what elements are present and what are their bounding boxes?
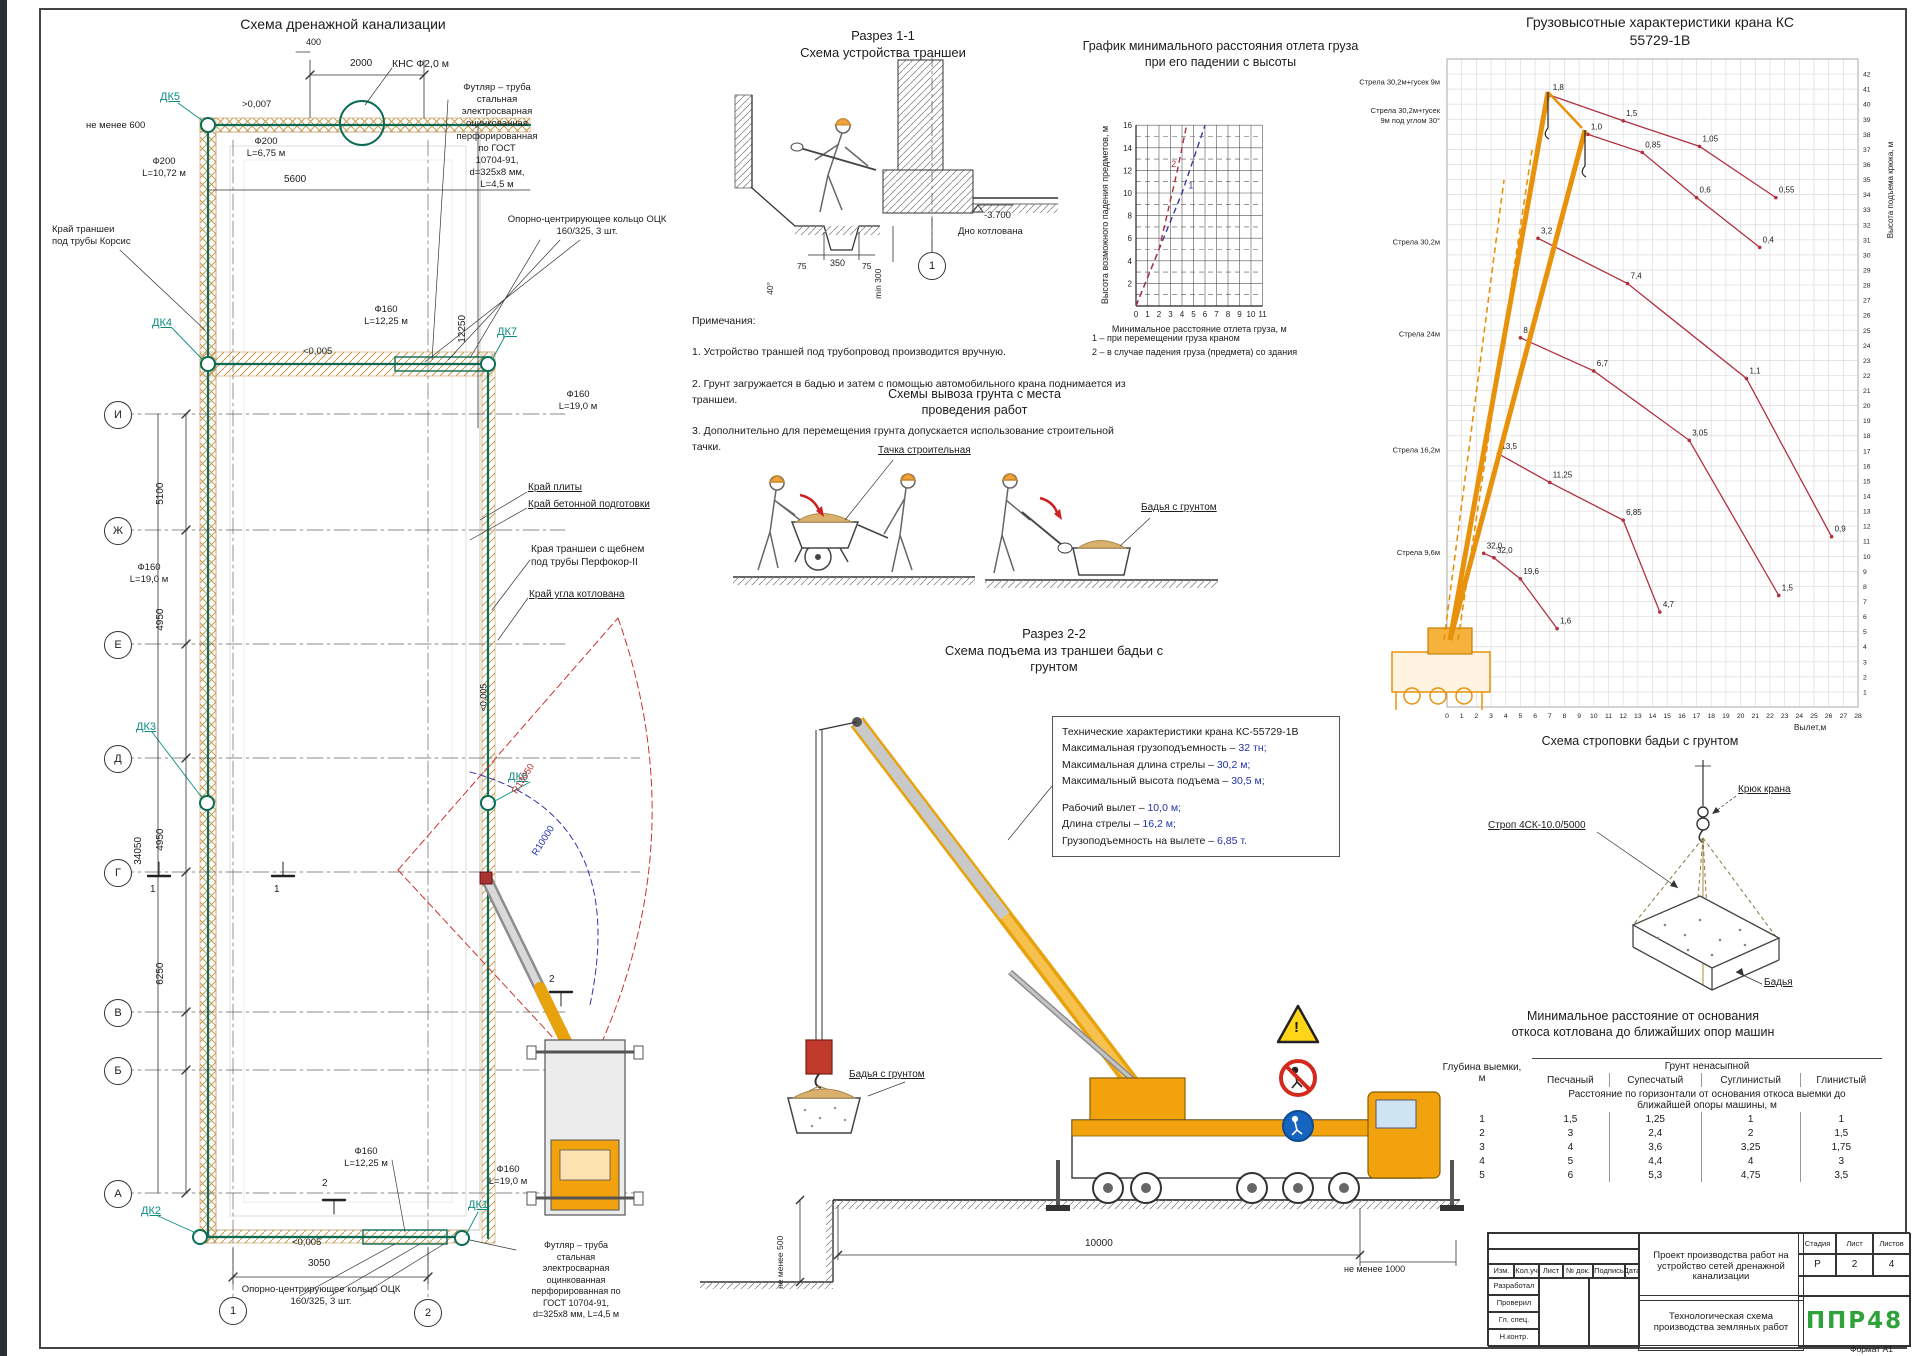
sling-title: Схема строповки бадьи с грунтом — [1510, 733, 1770, 749]
table-row: 11,51,2511 — [1432, 1112, 1882, 1126]
svg-text:21: 21 — [1751, 713, 1759, 720]
korsis-callout: Край траншеи под трубы Корсис — [52, 224, 131, 248]
svg-text:26: 26 — [1825, 713, 1833, 720]
specs-title: Технические характеристики крана КС-5572… — [1062, 724, 1330, 740]
svg-text:Стрела 30,2м: Стрела 30,2м — [1393, 237, 1440, 246]
svg-text:18: 18 — [1707, 713, 1715, 720]
cart-label: Тачка строительная — [878, 445, 971, 458]
svg-text:11: 11 — [1605, 713, 1612, 720]
svg-text:7: 7 — [1214, 310, 1219, 319]
svg-text:30: 30 — [1863, 252, 1871, 259]
svg-text:1,5: 1,5 — [1782, 583, 1794, 592]
section-2-2-title: Разрез 2-2 Схема подъема из траншеи бадь… — [920, 626, 1188, 676]
f160-1225-label-top: Ф160 L=12,25 м — [344, 304, 428, 328]
tb-stage-value: Р — [1798, 1253, 1837, 1277]
svg-text:2: 2 — [1128, 279, 1133, 288]
svg-text:2: 2 — [1863, 674, 1867, 681]
svg-text:8: 8 — [1863, 584, 1867, 591]
svg-text:3: 3 — [1489, 713, 1493, 720]
svg-text:4: 4 — [1180, 310, 1185, 319]
s22-dim-10000: 10000 — [1085, 1238, 1113, 1251]
svg-text:37: 37 — [1863, 147, 1871, 154]
fall-chart-title: График минимального расстояния отлета гр… — [1073, 38, 1368, 70]
svg-text:Стрела 30,2м+гусек: Стрела 30,2м+гусек — [1371, 106, 1441, 115]
s11-angle: 40° — [765, 282, 776, 295]
svg-text:36: 36 — [1863, 162, 1871, 169]
axis-bubble-v: В — [104, 999, 132, 1027]
strop-label: Строп 4СК-10.0/5000 — [1488, 820, 1586, 833]
axis-bubble-i: И — [104, 401, 132, 429]
depth-header: Глубина выемки, м — [1432, 1059, 1532, 1088]
svg-text:8: 8 — [1226, 310, 1231, 319]
svg-text:8: 8 — [1128, 212, 1133, 221]
svg-text:40: 40 — [1863, 102, 1871, 109]
svg-text:1: 1 — [1460, 713, 1464, 720]
svg-text:14: 14 — [1863, 494, 1871, 501]
svg-text:Высота возможного падения пред: Высота возможного падения предметов, м — [1100, 126, 1110, 304]
svg-text:41: 41 — [1863, 87, 1871, 94]
drawing-sheet: 0123456789101112131415161718192021222324… — [0, 0, 1920, 1356]
svg-text:20: 20 — [1737, 713, 1745, 720]
svg-text:16: 16 — [1123, 121, 1132, 130]
svg-text:1: 1 — [1863, 689, 1867, 696]
crane-chart-title: Грузовысотные характеристики крана КС 55… — [1505, 14, 1815, 50]
warning-sign-glyph: ! — [1294, 1018, 1299, 1037]
svg-text:12: 12 — [1863, 524, 1871, 531]
svg-text:0: 0 — [1445, 713, 1449, 720]
svg-text:2: 2 — [1171, 159, 1176, 169]
svg-text:28: 28 — [1854, 713, 1862, 720]
svg-text:10: 10 — [1247, 310, 1256, 319]
tb-sheet-header: Лист — [1835, 1233, 1874, 1255]
svg-text:16: 16 — [1863, 463, 1871, 470]
edge-pit-callout: Край угла котлована — [529, 589, 624, 602]
svg-text:1: 1 — [1145, 310, 1150, 319]
f160-19-label-left: Ф160 L=19,0 м — [112, 562, 186, 586]
svg-text:8: 8 — [1563, 713, 1567, 720]
dim-5600: 5600 — [284, 174, 306, 187]
svg-text:14: 14 — [1123, 144, 1132, 153]
notes-heading: Примечания: — [692, 314, 1142, 330]
svg-text:31: 31 — [1863, 237, 1871, 244]
svg-text:26: 26 — [1863, 313, 1871, 320]
svg-text:6: 6 — [1128, 234, 1133, 243]
tb-row-ncontr: Н.контр. — [1488, 1328, 1540, 1347]
svg-text:23: 23 — [1781, 713, 1789, 720]
f160-1225-label-bottom: Ф160 L=12,25 м — [322, 1146, 410, 1170]
svg-text:14: 14 — [1649, 713, 1657, 720]
f200-1-label: Ф200 L=10,72 м — [128, 156, 200, 180]
svg-text:22: 22 — [1766, 713, 1774, 720]
svg-text:11,25: 11,25 — [1553, 470, 1573, 479]
section-1-flag-b: 1 — [274, 884, 280, 897]
dim-2000: 2000 — [350, 58, 372, 71]
spec-radius-capacity: Грузоподъемность на вылете – 6,85 т. — [1062, 833, 1330, 849]
svg-text:27: 27 — [1863, 298, 1871, 305]
svg-text:7,4: 7,4 — [1631, 272, 1643, 281]
s22-dim-1000: не менее 1000 — [1344, 1264, 1405, 1276]
svg-text:9: 9 — [1237, 310, 1242, 319]
svg-text:3,2: 3,2 — [1541, 226, 1553, 235]
svg-text:5: 5 — [1519, 713, 1523, 720]
badya-label: Бадья — [1764, 977, 1793, 990]
svg-text:1,6: 1,6 — [1560, 617, 1572, 626]
tb-project-name: Проект производства работ на устройство … — [1638, 1233, 1804, 1301]
svg-text:10: 10 — [1863, 554, 1871, 561]
tb-logo: ППР48 — [1798, 1295, 1911, 1347]
svg-text:35: 35 — [1863, 177, 1871, 184]
title-block: Изм. Кол.уч Лист № док. Подпись Дата Раз… — [1487, 1232, 1910, 1346]
kns-label: КНС Ф2,0 м — [392, 58, 449, 71]
s11-elevation: -3.700 — [984, 210, 1011, 222]
svg-text:18: 18 — [1863, 433, 1871, 440]
casing-bottom-callout: Футляр – труба стальная электросварная о… — [514, 1240, 638, 1321]
col-bubble-1: 1 — [219, 1297, 247, 1325]
svg-text:21: 21 — [1863, 388, 1871, 395]
svg-text:6: 6 — [1203, 310, 1208, 319]
svg-text:0,4: 0,4 — [1763, 235, 1775, 244]
slope-005-top: <0,005 — [303, 346, 332, 358]
slope-005-vert: <0,005 — [478, 684, 490, 712]
tb-stage-header: Стадия — [1798, 1233, 1837, 1255]
fall-chart-legend-1: 1 – при перемещении груза краном — [1092, 333, 1412, 345]
s11-dim-75-left: 75 — [797, 261, 806, 272]
ne-menee-600-label: не менее 600 — [86, 120, 145, 132]
tb-sheets-header: Листов — [1872, 1233, 1911, 1255]
svg-text:10: 10 — [1123, 189, 1132, 198]
svg-text:20: 20 — [1863, 403, 1871, 410]
svg-text:6,7: 6,7 — [1597, 359, 1609, 368]
svg-text:16: 16 — [1678, 713, 1686, 720]
svg-text:2: 2 — [1157, 310, 1162, 319]
svg-text:6,85: 6,85 — [1626, 508, 1642, 517]
dk2-marker: ДК2 — [141, 1204, 161, 1218]
table-row: 454,443 — [1432, 1154, 1882, 1168]
table-note: Расстояние по горизонтали от основания о… — [1532, 1087, 1882, 1112]
slope-005-bottom: <0,005 — [292, 1237, 321, 1249]
spec-lift-height: Максимальный высота подъема – 30,5 м; — [1062, 773, 1330, 789]
slope-top-label: >0,007 — [242, 99, 271, 111]
axis-bubble-a: А — [104, 1180, 132, 1208]
svg-text:0,55: 0,55 — [1779, 186, 1795, 195]
svg-text:2: 2 — [1474, 713, 1478, 720]
svg-text:27: 27 — [1840, 713, 1848, 720]
svg-text:25: 25 — [1863, 328, 1871, 335]
dk3-marker: ДК3 — [136, 720, 156, 734]
axis-bubble-b: Б — [104, 1057, 132, 1085]
svg-text:7: 7 — [1548, 713, 1552, 720]
svg-text:13: 13 — [1634, 713, 1642, 720]
svg-text:3,05: 3,05 — [1692, 428, 1708, 437]
dim-4950-b: 4950 — [155, 829, 168, 851]
soil-bucket-label: Бадья с грунтом — [1141, 502, 1217, 515]
fall-chart-legend-2: 2 – в случае падения груза (предмета) со… — [1092, 347, 1412, 359]
table-row: 343,63,251,75 — [1432, 1140, 1882, 1154]
section-2-flag-b: 2 — [549, 974, 555, 987]
svg-text:4: 4 — [1128, 257, 1133, 266]
svg-text:4: 4 — [1504, 713, 1508, 720]
distance-table-title: Минимальное расстояние от основания отко… — [1468, 1008, 1818, 1040]
svg-text:3: 3 — [1863, 659, 1867, 666]
dim-4950-a: 4950 — [155, 609, 168, 631]
casing-top-callout: Футляр – труба стальная электросварная о… — [443, 82, 551, 191]
svg-text:4: 4 — [1863, 644, 1867, 651]
dk5-marker: ДК5 — [160, 90, 180, 104]
spec-boom-length-max: Максимальная длина стрелы – 30,2 м; — [1062, 757, 1330, 773]
svg-text:Вылет,м: Вылет,м — [1794, 722, 1826, 732]
svg-text:Стрела 16,2м: Стрела 16,2м — [1393, 445, 1440, 454]
s11-dim-75-right: 75 — [862, 261, 871, 272]
svg-text:24: 24 — [1863, 343, 1871, 350]
svg-text:25: 25 — [1810, 713, 1818, 720]
edge-trench-callout: Края траншеи с щебнем под трубы Перфокор… — [531, 544, 644, 570]
axis-bubble-d: Д — [104, 745, 132, 773]
svg-text:39: 39 — [1863, 117, 1871, 124]
s11-min-300: min 300 — [873, 269, 884, 299]
s11-dim-350: 350 — [830, 258, 845, 270]
svg-text:23: 23 — [1863, 358, 1871, 365]
s11-detail-bubble: 1 — [918, 252, 946, 280]
svg-text:3: 3 — [1168, 310, 1173, 319]
edge-plate-callout: Край плиты — [528, 482, 582, 495]
axis-bubble-e: Е — [104, 631, 132, 659]
plan-title: Схема дренажной канализации — [203, 16, 483, 34]
svg-text:1: 1 — [1188, 180, 1193, 190]
edge-concrete-callout: Край бетонной подготовки — [528, 499, 650, 512]
table-row: 565,34,753,5 — [1432, 1168, 1882, 1182]
svg-text:0,6: 0,6 — [1700, 186, 1712, 195]
svg-text:6: 6 — [1533, 713, 1537, 720]
s22-bucket-label: Бадья с грунтом — [849, 1069, 925, 1082]
dim-34050: 34050 — [133, 837, 146, 865]
hook-label: Крюк крана — [1738, 784, 1791, 797]
note-item-1: 1. Устройство траншей под трубопровод пр… — [692, 345, 1142, 361]
crane-specs-box: Технические характеристики крана КС-5572… — [1052, 716, 1340, 857]
crane-silhouette — [1392, 92, 1586, 710]
axis-bubble-zh: Ж — [104, 517, 132, 545]
svg-text:22: 22 — [1863, 373, 1871, 380]
tb-doc-subtitle: Технологическая схема производства земля… — [1638, 1295, 1804, 1351]
axis-bubble-g: Г — [104, 859, 132, 887]
svg-text:34: 34 — [1863, 192, 1871, 199]
spec-capacity: Максимальная грузоподъемность – 32 тн; — [1062, 740, 1330, 756]
s11-pit-bottom-label: Дно котлована — [958, 226, 1023, 238]
svg-text:9: 9 — [1863, 569, 1867, 576]
svg-text:19: 19 — [1722, 713, 1730, 720]
svg-text:42: 42 — [1863, 72, 1871, 79]
svg-text:Стрела 9,6м: Стрела 9,6м — [1397, 548, 1440, 557]
format-label: Формат А1 — [1850, 1344, 1893, 1355]
svg-text:5: 5 — [1863, 629, 1867, 636]
f160-19-label-bottom: Ф160 L=19,0 м — [470, 1164, 546, 1188]
svg-text:17: 17 — [1863, 448, 1871, 455]
svg-text:5: 5 — [1191, 310, 1196, 319]
svg-text:Стрела 30,2м+гусек 9м: Стрела 30,2м+гусек 9м — [1359, 78, 1440, 87]
plan-drawing — [118, 52, 652, 1300]
svg-text:1,8: 1,8 — [1553, 83, 1565, 92]
s22-dim-500: не менее 500 — [775, 1236, 786, 1289]
svg-text:33: 33 — [1863, 207, 1871, 214]
section-1-flag-a: 1 — [150, 884, 156, 897]
svg-text:32,0: 32,0 — [1497, 546, 1513, 555]
svg-text:7: 7 — [1863, 599, 1867, 606]
svg-text:28: 28 — [1863, 283, 1871, 290]
svg-text:19,6: 19,6 — [1523, 567, 1539, 576]
svg-text:Высота подъема крюка, м: Высота подъема крюка, м — [1886, 142, 1895, 238]
dk7-marker: ДК7 — [497, 325, 517, 339]
ock-top-callout: Опорно-центрирующее кольцо ОЦК 160/325, … — [498, 214, 676, 238]
dim-3050: 3050 — [308, 1258, 330, 1271]
svg-text:29: 29 — [1863, 267, 1871, 274]
svg-text:10: 10 — [1590, 713, 1598, 720]
svg-text:4,7: 4,7 — [1663, 600, 1675, 609]
f160-19-label-right: Ф160 L=19,0 м — [541, 389, 615, 413]
f200-2-label: Ф200 L=6,75 м — [228, 136, 304, 160]
dim-6250: 6250 — [155, 963, 168, 985]
section-2-flag-a: 2 — [322, 1178, 328, 1191]
svg-text:1,0: 1,0 — [1591, 122, 1603, 131]
svg-text:17: 17 — [1693, 713, 1701, 720]
table-row: 232,421,5 — [1432, 1126, 1882, 1140]
dim-400: 400 — [306, 37, 321, 49]
soil-group-header: Грунт ненасыпной — [1532, 1059, 1882, 1074]
dim-12250: 12250 — [457, 315, 470, 343]
section-1-1-title: Разрез 1-1 Схема устройства траншеи — [763, 28, 1003, 61]
svg-text:11: 11 — [1258, 310, 1267, 319]
dk1-marker: ДК1 — [468, 1198, 488, 1212]
tb-sheet-value: 2 — [1835, 1253, 1874, 1277]
spec-boom-length: Длина стрелы – 16,2 м; — [1062, 816, 1330, 832]
svg-text:9м под углом 30°: 9м под углом 30° — [1381, 116, 1440, 125]
svg-text:13: 13 — [1863, 509, 1871, 516]
spec-work-radius: Рабочий вылет – 10,0 м; — [1062, 800, 1330, 816]
svg-text:1,5: 1,5 — [1626, 109, 1638, 118]
svg-text:1,05: 1,05 — [1702, 134, 1718, 143]
ock-bottom-callout: Опорно-центрирующее кольцо ОЦК 160/325, … — [232, 1284, 410, 1308]
svg-text:32: 32 — [1863, 222, 1871, 229]
svg-text:15: 15 — [1663, 713, 1671, 720]
svg-text:9: 9 — [1577, 713, 1581, 720]
min-distance-table: Глубина выемки, м Грунт ненасыпной Песча… — [1432, 1058, 1882, 1182]
svg-text:0,85: 0,85 — [1645, 140, 1661, 149]
svg-text:1,1: 1,1 — [1749, 366, 1761, 375]
svg-text:38: 38 — [1863, 132, 1871, 139]
dim-5100: 5100 — [155, 483, 168, 505]
svg-text:6: 6 — [1863, 614, 1867, 621]
soil-removal-title: Схемы вывоза грунта с места проведения р… — [872, 386, 1077, 418]
svg-text:12: 12 — [1123, 166, 1132, 175]
svg-text:11: 11 — [1863, 539, 1870, 546]
svg-text:19: 19 — [1863, 418, 1871, 425]
col-bubble-2: 2 — [414, 1299, 442, 1327]
svg-text:0,9: 0,9 — [1835, 525, 1847, 534]
soil-removal-drawing — [733, 460, 1218, 588]
svg-text:24: 24 — [1796, 713, 1804, 720]
tb-sheets-value: 4 — [1872, 1253, 1911, 1277]
svg-text:12: 12 — [1619, 713, 1627, 720]
dk4-marker: ДК4 — [152, 316, 172, 330]
svg-text:15: 15 — [1863, 478, 1871, 485]
